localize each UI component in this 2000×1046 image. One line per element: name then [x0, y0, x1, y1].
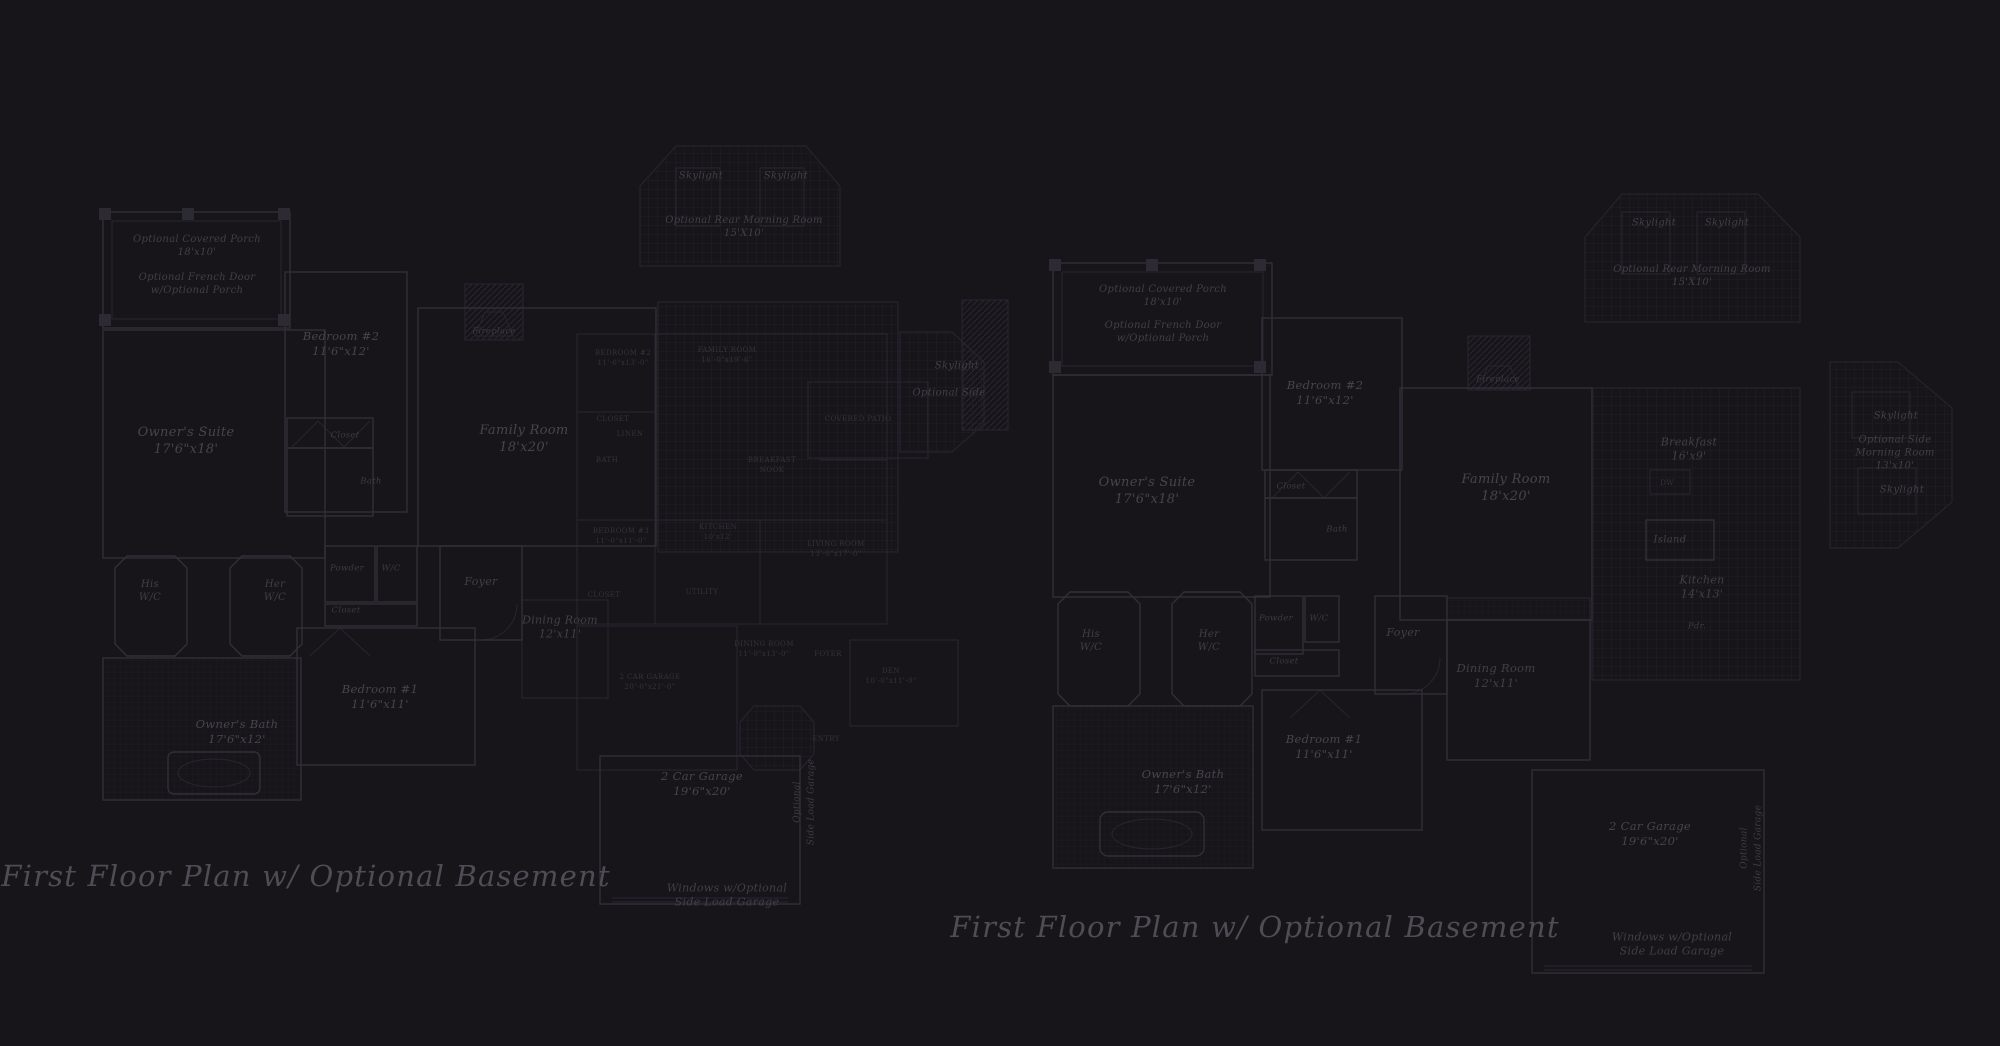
inset-room-label: DW [1660, 478, 1674, 488]
room-label: Family Room 18'x20' [1461, 472, 1550, 506]
room-label: Optional Rear Morning Room 15'X10' [1613, 263, 1771, 289]
room-label: Bath [1326, 524, 1347, 535]
room-label: Optional Covered Porch 18'x10' [1099, 283, 1227, 309]
room-label: Skylight [1705, 217, 1749, 230]
room-label: Skylight [1632, 217, 1676, 230]
room-label: Bedroom #1 11'6"x11' [1286, 732, 1362, 762]
room-label: Skylight [1880, 484, 1924, 497]
room-label: Closet [1270, 656, 1299, 667]
room-label: Her W/C [1198, 628, 1220, 654]
floor-plan-page: Optional Covered Porch 18'x10'Optional F… [0, 0, 2000, 1046]
room-label: Foyer [1386, 626, 1419, 640]
room-label: His W/C [1080, 628, 1102, 654]
room-label: Optional Side Morning Room 13'x10' [1855, 434, 1934, 473]
room-label: Skylight [1874, 410, 1918, 423]
room-label: Owner's Suite 17'6"x18' [1099, 475, 1196, 509]
labels-layer-right: Optional Covered Porch 18'x10'Optional F… [0, 0, 2000, 1046]
room-label: Windows w/Optional Side Load Garage [1612, 931, 1732, 960]
room-label: Owner's Bath 17'6"x12' [1142, 767, 1225, 797]
room-label: W/C [1309, 613, 1328, 624]
room-label: Kitchen 14'x13' [1679, 574, 1724, 603]
room-label: Pdr. [1688, 621, 1706, 632]
room-label: Powder [1259, 613, 1293, 624]
room-label: Fireplace [1476, 374, 1519, 385]
room-label: Dining Room 12'x11' [1456, 661, 1535, 691]
room-label: Bedroom #2 11'6"x12' [1287, 378, 1363, 408]
room-label: Optional French Door w/Optional Porch [1105, 319, 1222, 345]
room-label: Optional Side Load Garage [1739, 805, 1766, 892]
room-label: Breakfast 16'x9' [1661, 436, 1717, 465]
room-label: Island [1654, 534, 1687, 547]
room-label: 2 Car Garage 19'6"x20' [1609, 819, 1691, 849]
room-label: Closet [1277, 481, 1306, 492]
